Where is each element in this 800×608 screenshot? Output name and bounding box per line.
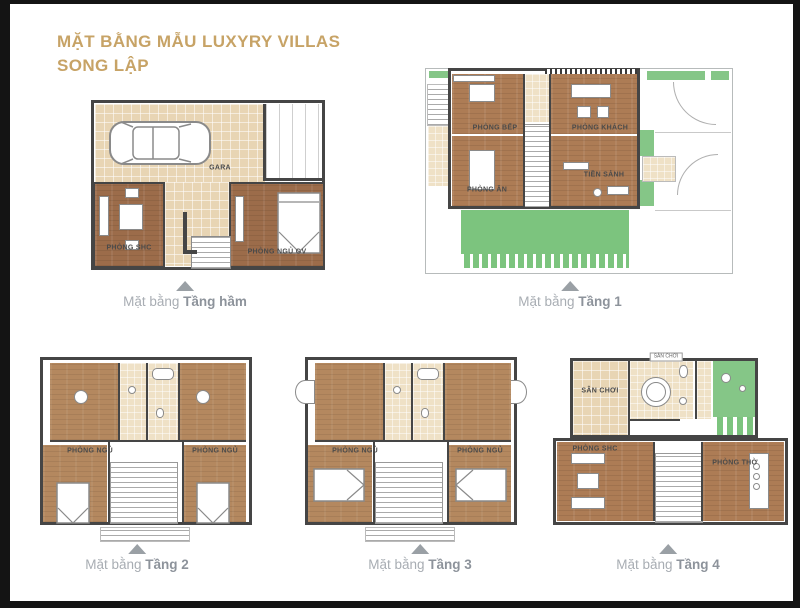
- console-icon: [563, 162, 589, 170]
- green-room: [713, 361, 755, 417]
- wall: [178, 363, 180, 440]
- wall: [653, 442, 655, 521]
- sink-icon: [679, 397, 687, 405]
- room-label-khach: PHÒNG KHÁCH: [572, 125, 628, 132]
- bathroom-left: [120, 363, 148, 440]
- decor-icon: [753, 473, 760, 480]
- room-label-shc: PHÒNG SHC: [572, 446, 617, 453]
- bed-icon: [196, 482, 230, 524]
- closet: [695, 361, 711, 419]
- wall: [630, 419, 680, 421]
- room-san-choi: [573, 361, 628, 435]
- bench-icon: [607, 186, 629, 195]
- floorplan-floor2: PHÒNG NGỦ PHÒNG NGỦ: [38, 350, 273, 562]
- bed-icon: [277, 192, 321, 254]
- bed-icon: [455, 468, 507, 502]
- sofa-icon: [571, 84, 611, 98]
- caption-floor3: Mặt bằng Tầng 3: [368, 544, 472, 572]
- caption-name: Tầng hầm: [183, 294, 247, 309]
- wall: [315, 440, 511, 442]
- caption-name: Tầng 3: [428, 557, 472, 572]
- balcony: [365, 527, 455, 542]
- decor-icon: [753, 483, 760, 490]
- room-upper-right: [445, 363, 511, 440]
- room-label-gara: GARA: [209, 165, 231, 172]
- ceiling-fan-icon: [74, 390, 88, 404]
- room-label-ngu-right: PHÒNG NGỦ: [192, 448, 238, 455]
- side-path: [428, 126, 448, 186]
- caption-floor2: Mặt bằng Tầng 2: [85, 544, 189, 572]
- page-title: MẶT BẰNG MẪU LUXYRY VILLAS SONG LẬP: [57, 30, 340, 78]
- caption-arrow-icon: [659, 544, 677, 554]
- bed-icon: [56, 482, 90, 524]
- table-icon: [119, 204, 143, 230]
- basement-stairs: [191, 236, 231, 269]
- title-line-2: SONG LẬP: [57, 54, 340, 78]
- bathroom: [525, 74, 549, 122]
- sofa-icon: [571, 453, 605, 464]
- caption-prefix: Mặt bằng: [518, 294, 574, 309]
- plant-icon: [721, 373, 731, 383]
- floor2-stairs: [110, 462, 178, 524]
- caption-arrow-icon: [128, 544, 146, 554]
- caption-arrow-icon: [561, 281, 579, 291]
- caption-floor4: Mặt bằng Tầng 4: [616, 544, 720, 572]
- coffee-table-icon: [577, 106, 591, 118]
- room-upper-right: [180, 363, 246, 440]
- green-strip: [711, 71, 729, 80]
- floor4-stairs: [655, 453, 703, 523]
- wall: [263, 104, 266, 180]
- room-upper-left: [315, 363, 383, 440]
- wall: [118, 363, 120, 440]
- room-label-tien-sanh: TIỀN SẢNH: [584, 172, 624, 179]
- room-label-ngu-left: PHÒNG NGỦ: [332, 448, 378, 455]
- green-hatch: [713, 417, 755, 435]
- lawn-hatch: [461, 254, 629, 268]
- plant-icon: [739, 385, 746, 392]
- basement-driveway: [266, 104, 321, 178]
- floorplan-floor1: PHÒNG BẾP PHÒNG KHÁCH PHÒNG ĂN TIỀN SẢNH: [425, 62, 735, 284]
- entry-steps: [642, 156, 676, 182]
- toilet-icon: [679, 365, 688, 378]
- green-patch: [640, 180, 654, 206]
- title-line-1: MẶT BẰNG MẪU LUXYRY VILLAS: [57, 30, 340, 54]
- coffee-table-icon: [577, 473, 599, 489]
- room-label-ngu-gv: PHÒNG NGỦ GV: [248, 249, 307, 256]
- room-phong-tho: [703, 442, 784, 521]
- ceiling-fan-icon: [196, 390, 210, 404]
- bathtub-icon: [152, 368, 174, 380]
- car-icon: [107, 118, 213, 168]
- photo-frame: MẶT BẰNG MẪU LUXYRY VILLAS SONG LẬP: [0, 0, 800, 608]
- caption-prefix: Mặt bằng: [616, 557, 672, 572]
- wall: [447, 442, 449, 522]
- floor1-stairs: [525, 124, 549, 207]
- porch-line: [655, 132, 731, 133]
- green-strip: [647, 71, 705, 80]
- wardrobe-icon: [235, 196, 244, 242]
- room-label-san-choi: SÂN CHƠI: [581, 388, 618, 395]
- floorplan-floor4: SÂN CHƠI SÂN CHƠI PHÒNG SHC PHÒNG THỜ: [553, 345, 791, 560]
- bay-window-icon: [295, 380, 315, 404]
- wall: [549, 74, 551, 206]
- toilet-icon: [421, 408, 429, 418]
- armchair-icon: [125, 188, 139, 198]
- caption-floor1: Mặt bằng Tầng 1: [518, 281, 622, 309]
- dining-table-icon: [469, 150, 495, 190]
- caption-prefix: Mặt bằng: [85, 557, 141, 572]
- caption-name: Tầng 2: [145, 557, 189, 572]
- armchair-icon: [597, 106, 609, 118]
- jacuzzi-inner-icon: [646, 382, 666, 402]
- room-label-ngu-left: PHÒNG NGỦ: [67, 448, 113, 455]
- balcony: [100, 527, 190, 542]
- caption-basement: Mặt bằng Tầng hầm: [123, 281, 247, 309]
- caption-arrow-icon: [176, 281, 194, 291]
- caption-arrow-icon: [411, 544, 429, 554]
- bathroom-left: [385, 363, 413, 440]
- floorplan-floor3: PHÒNG NGỦ PHÒNG NGỦ: [303, 350, 538, 562]
- caption-prefix: Mặt bằng: [123, 294, 179, 309]
- caption-prefix: Mặt bằng: [368, 557, 424, 572]
- wall: [383, 363, 385, 440]
- wall: [701, 442, 703, 521]
- side-table-icon: [593, 188, 602, 197]
- counter-icon: [453, 75, 495, 82]
- caption-name: Tầng 4: [676, 557, 720, 572]
- wall: [50, 440, 246, 442]
- toilet-icon: [156, 408, 164, 418]
- green-patch: [640, 130, 654, 156]
- bathtub-icon: [417, 368, 439, 380]
- sink-icon: [393, 386, 401, 394]
- floor3-stairs: [375, 462, 443, 524]
- sofa-icon: [99, 196, 109, 236]
- wall: [182, 442, 184, 522]
- floorplan-basement: GARA PHÒNG SHC PHÒNG NGỦ GV: [85, 100, 345, 278]
- room-label-tho: PHÒNG THỜ: [712, 460, 758, 467]
- kitchen-island-icon: [469, 84, 495, 102]
- room-label-bep: PHÒNG BẾP: [473, 125, 518, 132]
- bed-icon: [313, 468, 365, 502]
- wall: [443, 363, 445, 440]
- sink-icon: [128, 386, 136, 394]
- room-label-ngu-right: PHÒNG NGỦ: [457, 448, 503, 455]
- room-label-an: PHÒNG ĂN: [467, 187, 507, 194]
- wall: [628, 361, 630, 435]
- room-label-san-choi-top: SÂN CHƠI: [650, 353, 683, 362]
- caption-name: Tầng 1: [578, 294, 622, 309]
- porch-line: [655, 210, 731, 211]
- wall: [263, 178, 325, 181]
- sofa-icon: [571, 497, 605, 509]
- room-label-shc: PHÒNG SHC: [106, 245, 151, 252]
- stair-rail: [183, 250, 197, 254]
- outdoor-stairs: [427, 84, 450, 126]
- stair-rail: [183, 212, 187, 254]
